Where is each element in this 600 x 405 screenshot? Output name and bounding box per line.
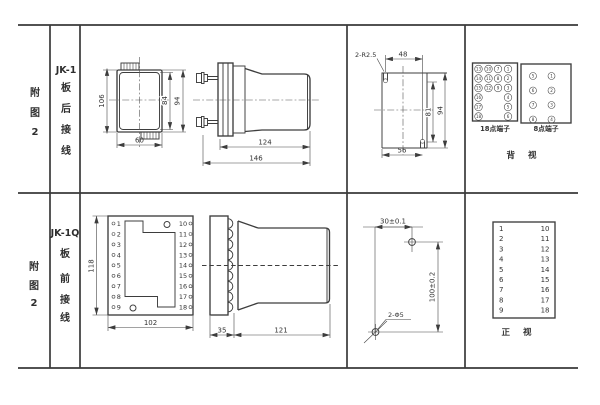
- terminal-number: 17: [476, 104, 482, 109]
- terminal-number: 5: [117, 262, 121, 270]
- terminal-18-col1: 13 14 15 16 17 18: [475, 65, 483, 120]
- terminal-number: 1: [117, 220, 121, 228]
- dim-84-label: 84: [161, 96, 169, 105]
- terminal-number: 3: [499, 245, 503, 253]
- terminal-number: 12: [179, 241, 187, 249]
- terminal-number: 8: [117, 293, 121, 301]
- jk1q-terminals-front: 1 2 3 4 5 6 7 8 9 10 11 12 13 14 15 16 1…: [493, 222, 555, 338]
- dim-94-cutout-label: 94: [437, 106, 445, 115]
- dim-48-label: 48: [399, 51, 408, 59]
- terminal-number: 16: [179, 283, 187, 291]
- dim-124-label: 124: [258, 139, 272, 147]
- terminal-number: 3: [507, 85, 510, 90]
- wiring-char: 板: [61, 81, 72, 94]
- terminal-number: 14: [476, 76, 482, 81]
- jk1-terminals-rear: 13 14 15 16 17 18 10 11 12 7 8 9 1 2 3 4…: [473, 63, 572, 161]
- wiring-char: 线: [60, 311, 70, 324]
- terminal-number: 14: [179, 262, 187, 270]
- terminal-number: 16: [476, 95, 482, 100]
- terminal-number: 11: [179, 230, 187, 238]
- terminal-8-left: 5 6 7 8: [530, 73, 537, 124]
- fig-char: 2: [31, 298, 38, 309]
- dimension-drawing: 附 图 2 JK-1 板 后 接 线 106 84 94 60: [0, 0, 600, 400]
- terminal-number: 17: [179, 293, 187, 301]
- terminal-number: 18: [179, 304, 187, 312]
- terminal-number: 15: [476, 85, 482, 90]
- model-name: JK-1: [55, 65, 77, 76]
- wiring-char: 接: [60, 293, 70, 306]
- terminal-number: 1: [507, 66, 510, 71]
- terminal-number: 8: [497, 76, 500, 81]
- terminal-number: 11: [486, 76, 492, 81]
- dim-60-label: 60: [135, 137, 144, 145]
- dim-100-label: 100±0.2: [429, 272, 437, 302]
- terminal-number: 7: [499, 286, 503, 294]
- terminal-number: 7: [497, 66, 500, 71]
- terminal-number: 5: [499, 266, 503, 274]
- dim-121-label: 121: [274, 327, 287, 335]
- rear-view-caption: 背 视: [507, 150, 542, 161]
- dim-106-label: 106: [98, 94, 106, 108]
- terminal-number: 5: [532, 73, 535, 78]
- terminal-8-caption: 8点端子: [533, 124, 558, 133]
- terminal-number: 3: [117, 241, 121, 249]
- terminal-number: 18: [541, 307, 550, 315]
- terminal-number: 8: [499, 296, 503, 304]
- terminal-8-right: 1 2 3 4: [548, 73, 555, 124]
- terminal-number: 12: [486, 85, 492, 90]
- terminal-18-caption: 18点端子: [480, 124, 510, 133]
- dim-35-label: 35: [218, 327, 227, 335]
- wiring-char: 板: [60, 247, 71, 260]
- terminal-number: 13: [179, 251, 187, 259]
- jk1q-front-terminals-left: 1 2 3 4 5 6 7 8 9: [112, 220, 121, 312]
- terminal-number: 1: [499, 225, 503, 233]
- terminal-number: 9: [497, 85, 500, 90]
- fig-char: 附: [29, 260, 39, 273]
- terminal-number: 13: [541, 256, 550, 264]
- mounting-stud-top: [197, 73, 219, 84]
- dim-81-label: 81: [425, 108, 433, 117]
- fig-char: 附: [30, 86, 40, 99]
- terminal-18-col3: 7 8 9: [494, 65, 502, 92]
- terminal-table-right: 10 11 12 13 14 15 16 17 18: [541, 225, 550, 315]
- jk1-front-view: 106 84 94 60: [98, 57, 186, 148]
- figure-sheet: 附 图 2 JK-1 板 后 接 线 106 84 94 60: [0, 0, 600, 400]
- jk1q-side-view: 35 121: [202, 216, 338, 338]
- terminal-number: 15: [179, 272, 187, 280]
- dim-30-label: 30±0.1: [380, 218, 406, 226]
- jk1q-front-terminals-right: 10 11 12 13 14 15 16 17 18: [179, 220, 192, 312]
- terminal-number: 6: [507, 114, 510, 119]
- terminal-number: 12: [541, 245, 550, 253]
- terminal-number: 6: [499, 276, 504, 284]
- dim-94-label: 94: [174, 96, 182, 105]
- terminal-number: 17: [541, 296, 550, 304]
- terminal-number: 4: [117, 251, 121, 259]
- terminal-number: 2: [550, 88, 553, 93]
- terminal-number: 2: [499, 235, 503, 243]
- front-view-caption: 正 视: [502, 327, 537, 338]
- terminal-number: 10: [486, 66, 492, 71]
- terminal-number: 10: [541, 225, 550, 233]
- terminal-number: 4: [499, 256, 504, 264]
- wiring-char: 线: [61, 144, 71, 157]
- fig-char: 图: [29, 280, 39, 292]
- wiring-char: 前: [60, 272, 70, 285]
- terminal-number: 4: [507, 95, 510, 100]
- terminal-number: 16: [541, 286, 550, 294]
- terminal-number: 6: [117, 272, 121, 280]
- terminal-number: 11: [541, 235, 550, 243]
- terminal-number: 18: [476, 114, 482, 119]
- terminal-number: 9: [117, 304, 121, 312]
- terminal-18-col4: 1 2 3 4 5 6: [504, 65, 512, 120]
- terminal-number: 2: [507, 76, 510, 81]
- terminal-number: 3: [550, 102, 553, 107]
- terminal-number: 15: [541, 276, 550, 284]
- row1-figure-label: 附 图 2: [30, 86, 40, 138]
- terminal-table-left: 1 2 3 4 5 6 7 8 9: [499, 225, 504, 315]
- fig-char: 2: [32, 127, 39, 138]
- terminal-number: 13: [476, 66, 482, 71]
- row2-figure-label: 附 图 2: [29, 260, 39, 309]
- hole-note: 2-Φ5: [388, 311, 404, 319]
- row1-model-label: JK-1 板 后 接 线: [55, 65, 77, 157]
- model-name: JK-1Q: [50, 228, 80, 239]
- jk1-cutout-view: 48 2-R2.5 81 94 56: [355, 51, 448, 159]
- row2-model-label: JK-1Q 板 前 接 线: [50, 228, 80, 324]
- terminal-number: 9: [499, 307, 503, 315]
- mounting-stud-bottom: [197, 117, 219, 128]
- wiring-char: 接: [61, 123, 71, 136]
- dim-118-label: 118: [88, 259, 96, 272]
- terminal-number: 2: [117, 230, 121, 238]
- terminal-number: 5: [507, 104, 510, 109]
- terminal-number: 7: [532, 102, 535, 107]
- terminal-number: 4: [550, 117, 553, 122]
- jk1q-drill-plan: 30±0.1 100±0.2 2-Φ5: [363, 218, 443, 344]
- jk1-side-view: 124 146: [193, 63, 320, 166]
- dim-56-label: 56: [398, 147, 407, 155]
- terminal-number: 1: [550, 73, 553, 78]
- jk1q-front-view: 1 2 3 4 5 6 7 8 9 10 11 12 13 14 15 16 1…: [88, 216, 194, 331]
- dim-146-label: 146: [249, 155, 263, 163]
- dim-102-label: 102: [144, 319, 157, 327]
- table-grid: [18, 25, 578, 368]
- terminal-number: 6: [532, 88, 535, 93]
- terminal-number: 10: [179, 220, 187, 228]
- terminal-number: 7: [117, 283, 121, 291]
- radius-note: 2-R2.5: [355, 51, 376, 59]
- terminal-number: 14: [541, 266, 550, 274]
- fig-char: 图: [30, 107, 40, 119]
- terminal-18-col2: 10 11 12: [485, 65, 493, 92]
- terminal-number: 8: [532, 117, 535, 122]
- wiring-char: 后: [61, 102, 71, 115]
